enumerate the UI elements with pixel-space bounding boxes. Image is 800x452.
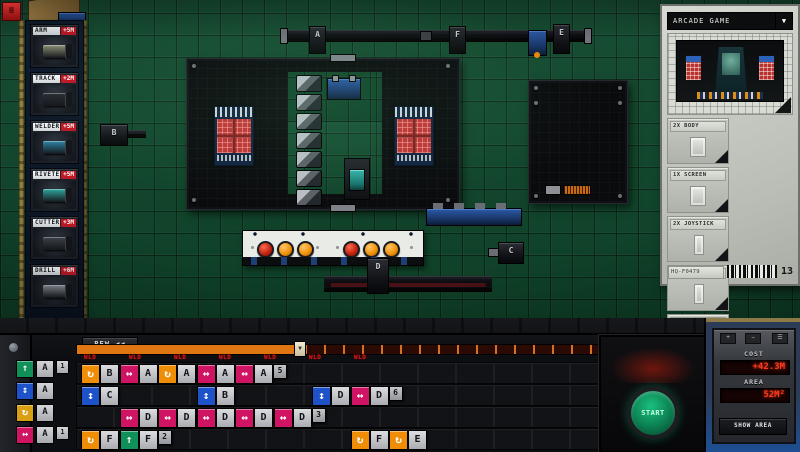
plate-tab xyxy=(330,54,356,62)
carriage-letter: C xyxy=(499,246,523,255)
minus-icon[interactable]: − xyxy=(745,333,761,344)
arm-segment xyxy=(296,113,322,130)
vert-icon: ↕ xyxy=(16,382,34,400)
command-chip[interactable]: ↻F xyxy=(351,430,389,450)
tool-machine-glyph xyxy=(43,141,67,154)
arm-segment xyxy=(296,132,322,149)
arm-segment xyxy=(296,75,322,92)
orange-button[interactable] xyxy=(363,241,380,258)
tool-card-header: WELDER+5M xyxy=(31,121,78,131)
rotate-icon: ↻ xyxy=(389,430,408,450)
part-image xyxy=(690,186,706,206)
part-image xyxy=(690,137,706,157)
chip-target: D xyxy=(177,408,196,428)
carriage-letter: B xyxy=(101,128,127,137)
legend-button-vert[interactable]: ↕A xyxy=(16,382,54,400)
legend-target-label: A xyxy=(36,426,54,444)
tool-machine-tip xyxy=(65,92,72,107)
move-icon: ↔ xyxy=(197,408,216,428)
playhead[interactable]: ▼ xyxy=(294,341,306,357)
move-icon: ↔ xyxy=(197,364,216,384)
tool-name: TRACK xyxy=(33,75,60,83)
move-icon: ↔ xyxy=(158,408,177,428)
chip-target: A xyxy=(216,364,235,384)
area-label: AREA xyxy=(714,378,794,386)
tool-name: WELDER xyxy=(33,123,60,131)
carriage-letter: E xyxy=(554,28,569,37)
tool-machine-glyph xyxy=(43,45,67,58)
tool-name: DRILL xyxy=(33,267,60,275)
carriage-letter: F xyxy=(450,30,465,39)
red-button[interactable] xyxy=(257,241,274,258)
chip-target: B xyxy=(216,386,235,406)
tool-image xyxy=(33,181,76,209)
orange-button[interactable] xyxy=(383,241,400,258)
command-chip[interactable]: ↔D6 xyxy=(351,386,403,406)
chip-target: A xyxy=(177,364,196,384)
arm-segment xyxy=(296,170,322,187)
chip-target: D xyxy=(331,386,350,406)
tool-image xyxy=(33,37,76,65)
tool-machine-glyph xyxy=(43,285,67,298)
tool-card-riveter[interactable]: RIVETER+5M xyxy=(30,168,79,212)
chip-target: B xyxy=(100,364,119,384)
move-icon: ↔ xyxy=(351,386,370,406)
alarm-glow xyxy=(611,347,695,383)
plate-sticker-barcode xyxy=(563,185,591,195)
red-button[interactable] xyxy=(343,241,360,258)
tool-card-welder[interactable]: WELDER+5M xyxy=(30,120,79,164)
conveyor-rail-bottom[interactable] xyxy=(324,276,492,292)
tool-machine-glyph xyxy=(43,237,67,250)
vert-icon: ↕ xyxy=(312,386,331,406)
part-quantity-name: 2X JOYSTICK xyxy=(670,219,726,230)
serial-label: HQ-F0479 xyxy=(668,266,724,279)
cost-label: COST xyxy=(714,350,794,358)
rotate-icon: ↻ xyxy=(351,430,370,450)
tool-price-badge: +5M xyxy=(61,27,76,35)
hazard-strip-left xyxy=(19,20,24,320)
control-bar xyxy=(242,230,424,266)
chip-number: 5 xyxy=(273,364,287,379)
menu-icon[interactable]: ☰ xyxy=(772,333,788,344)
timeline-track-4[interactable]: ↻F↑F2↻F↻E xyxy=(76,428,640,450)
command-chip[interactable]: ↕B xyxy=(197,386,235,406)
carriage-letter: A xyxy=(310,30,325,39)
tool-card-cutter[interactable]: CUTTER+3M xyxy=(30,216,79,260)
carriage-B[interactable]: B xyxy=(100,124,128,146)
legend-button-rotate2[interactable]: ↻A xyxy=(16,404,54,422)
command-chip[interactable]: ↻B xyxy=(81,364,119,384)
chip-number: 6 xyxy=(389,386,403,401)
legend-target-label: A xyxy=(36,404,54,422)
plate-sticker-label xyxy=(545,185,561,195)
legend-target-label: 1 xyxy=(56,426,69,440)
storage-plate[interactable] xyxy=(528,80,628,204)
menu-button[interactable]: ≡ xyxy=(2,2,21,21)
weld-marker: WLD xyxy=(309,354,321,361)
tool-price-badge: +5M xyxy=(61,123,76,131)
blueprint-dropdown-button[interactable]: ▼ xyxy=(775,12,793,30)
start-button[interactable]: START xyxy=(627,387,679,439)
welder-station[interactable] xyxy=(327,78,361,100)
carriage-E[interactable]: E xyxy=(553,24,570,54)
legend-target-label: A xyxy=(36,360,54,378)
command-chip[interactable]: ↔A5 xyxy=(235,364,287,384)
move-icon: ↔ xyxy=(120,364,139,384)
cost-pod: + − ☰ COST +42.3M AREA 52M² SHOW AREA xyxy=(712,328,796,444)
weld-marker: WLD xyxy=(129,354,141,361)
timeline-track-3[interactable]: ↔D3↔D3↔D4↔D5↔D3 xyxy=(76,406,640,428)
orange-button[interactable] xyxy=(277,241,294,258)
part-image xyxy=(694,284,704,304)
tool-card-header: ARM+5M xyxy=(31,25,78,35)
tool-price-badge: +6M xyxy=(61,267,76,275)
arm-segment xyxy=(296,151,322,168)
timeline-track-2[interactable]: ↕C↕B↕D↔D6 xyxy=(76,384,640,406)
rotate-icon: ↻ xyxy=(158,364,177,384)
tool-card-header: TRACK+2M xyxy=(31,73,78,83)
rail-endcap xyxy=(280,28,288,44)
part-cell-body[interactable]: 2X BODY xyxy=(667,118,729,164)
move-icon: ↔ xyxy=(274,408,293,428)
chip-number: 2 xyxy=(158,430,172,445)
tool-machine-tip xyxy=(65,140,72,155)
tool-name: RIVETER xyxy=(33,171,60,179)
weld-marker: WLD xyxy=(84,354,96,361)
corner-fold xyxy=(715,248,728,261)
legend-button-up[interactable]: ↑A1 xyxy=(16,360,69,378)
order-count: 13 xyxy=(781,265,793,278)
welder-on-rail[interactable] xyxy=(528,30,547,56)
command-chip[interactable]: ↻A xyxy=(158,364,196,384)
area-display: 52M² xyxy=(720,388,790,403)
rotate2-icon: ↻ xyxy=(16,404,34,422)
chip-target: D xyxy=(216,408,235,428)
part-cell-screen[interactable]: 1X SCREEN xyxy=(667,167,729,213)
up-icon: ↑ xyxy=(120,430,139,450)
part-quantity-name: 2X BODY xyxy=(670,121,726,132)
start-housing: START xyxy=(598,334,708,452)
part-spec-decal-right xyxy=(394,106,434,166)
blueprint-title: ARCADE GAME xyxy=(667,12,784,30)
robot-arm-column[interactable] xyxy=(296,75,322,199)
tool-card-drill[interactable]: DRILL+6M xyxy=(30,264,79,308)
plus-icon[interactable]: + xyxy=(720,333,736,344)
chip-target: E xyxy=(408,430,427,450)
tool-sidebar: ARM+5MTRACK+2MWELDER+5MRIVETER+5MCUTTER+… xyxy=(25,20,84,322)
cost-display: +42.3M xyxy=(720,360,790,375)
deck-knob[interactable] xyxy=(9,343,18,352)
riveter-station[interactable] xyxy=(344,158,370,200)
chip-target: C xyxy=(100,386,119,406)
command-chip[interactable]: ↕C xyxy=(81,386,119,406)
tool-image xyxy=(33,85,76,113)
legend-target-label: 1 xyxy=(56,360,69,374)
move-icon: ↔ xyxy=(235,364,254,384)
tool-name: CUTTER xyxy=(33,219,60,227)
chip-target: F xyxy=(100,430,119,450)
sequencer-deck: REW ◀◀ SKIP ▶▶ ↑A1↕A↻A↔A1 ▼ WLDWLDWLDWLD… xyxy=(0,318,800,452)
blueprint-photo xyxy=(676,40,784,102)
tool-price-badge: +2M xyxy=(61,75,76,83)
tool-machine-glyph xyxy=(43,93,67,106)
chip-target: D xyxy=(370,386,389,406)
command-chip[interactable]: ↻E xyxy=(389,430,427,450)
rotate-icon: ↻ xyxy=(81,430,100,450)
arm-segment xyxy=(296,94,322,111)
weld-marker: WLD xyxy=(174,354,186,361)
tool-price-badge: +5M xyxy=(61,171,76,179)
part-card-image xyxy=(758,55,775,81)
barcode xyxy=(727,265,777,278)
part-card-image xyxy=(685,55,702,81)
plate-tab xyxy=(330,204,356,212)
weld-marker: WLD xyxy=(354,354,366,361)
tool-image xyxy=(33,277,76,305)
tool-card-header: DRILL+6M xyxy=(31,265,78,275)
control-bar-top xyxy=(243,231,423,238)
carriage-F[interactable]: F xyxy=(449,26,466,54)
rotate-icon: ↻ xyxy=(81,364,100,384)
legend-button-move[interactable]: ↔A1 xyxy=(16,426,69,444)
tool-machine-glyph xyxy=(43,189,67,202)
tool-machine-tip xyxy=(65,188,72,203)
move-icon: ↔ xyxy=(16,426,34,444)
orange-button[interactable] xyxy=(297,241,314,258)
carriage-C[interactable]: C xyxy=(498,242,524,264)
chip-target: D xyxy=(293,408,312,428)
tool-price-badge: +3M xyxy=(61,219,76,227)
legend-target-label: A xyxy=(36,382,54,400)
tool-machine-tip xyxy=(65,44,72,59)
tool-machine-tip xyxy=(65,236,72,251)
carriage-A[interactable]: A xyxy=(309,26,326,54)
vert-icon: ↕ xyxy=(81,386,100,406)
control-bar-bottom xyxy=(243,257,423,265)
command-chip[interactable]: ↕D xyxy=(312,386,350,406)
blueprint-panel: ARCADE GAME ▼ 2X BODY1X SCREEN2X JOYSTIC… xyxy=(660,4,800,286)
command-chip[interactable]: ↻F xyxy=(81,430,119,450)
vert-icon: ↕ xyxy=(197,386,216,406)
corner-fold xyxy=(775,97,791,113)
chip-target: F xyxy=(370,430,389,450)
chip-number: 3 xyxy=(312,408,326,423)
tool-image xyxy=(33,133,76,161)
timeline-track-1[interactable]: ↻B↔A3↻A↔A4↔A5 xyxy=(76,362,640,384)
weld-marker: WLD xyxy=(264,354,276,361)
game-screen: ≡ xyxy=(0,0,800,452)
rail-marker xyxy=(420,31,432,41)
blueprint-preview xyxy=(667,33,793,115)
show-area-button[interactable]: SHOW AREA xyxy=(719,418,787,435)
chip-target: A xyxy=(139,364,158,384)
carriage-D[interactable]: D xyxy=(367,258,389,294)
manifold[interactable] xyxy=(426,208,522,226)
move-icon: ↔ xyxy=(120,408,139,428)
tool-card-header: RIVETER+5M xyxy=(31,169,78,179)
corner-fold xyxy=(715,150,728,163)
arm-segment xyxy=(296,189,322,206)
parts-bits-image xyxy=(697,92,763,99)
chip-target: A xyxy=(254,364,273,384)
part-quantity-name: 1X SCREEN xyxy=(670,170,726,181)
part-image xyxy=(694,235,704,255)
tool-machine-tip xyxy=(65,284,72,299)
chip-target: D xyxy=(254,408,273,428)
tool-card-track[interactable]: TRACK+2M xyxy=(30,72,79,116)
corner-fold xyxy=(715,199,728,212)
tool-name: ARM xyxy=(33,27,60,35)
brass-trim xyxy=(0,318,800,335)
tool-image xyxy=(33,229,76,257)
carriage-letter: D xyxy=(368,262,388,271)
command-chip[interactable]: ↔D3 xyxy=(274,408,326,428)
chip-target: D xyxy=(139,408,158,428)
tool-card-arm[interactable]: ARM+5M xyxy=(30,24,79,68)
part-spec-decal-left xyxy=(214,106,254,166)
corner-fold xyxy=(715,297,728,310)
arcade-screen-image xyxy=(722,53,740,75)
chip-target: F xyxy=(139,430,158,450)
move-icon: ↔ xyxy=(235,408,254,428)
blueprint-footer: HQ-F0479 13 xyxy=(667,265,793,279)
rail-endcap xyxy=(584,28,592,44)
command-chip[interactable]: ↑F2 xyxy=(120,430,172,450)
tool-card-header: CUTTER+3M xyxy=(31,217,78,227)
up-icon: ↑ xyxy=(16,360,34,378)
weld-marker: WLD xyxy=(219,354,231,361)
part-cell-joystick[interactable]: 2X JOYSTICK xyxy=(667,216,729,262)
